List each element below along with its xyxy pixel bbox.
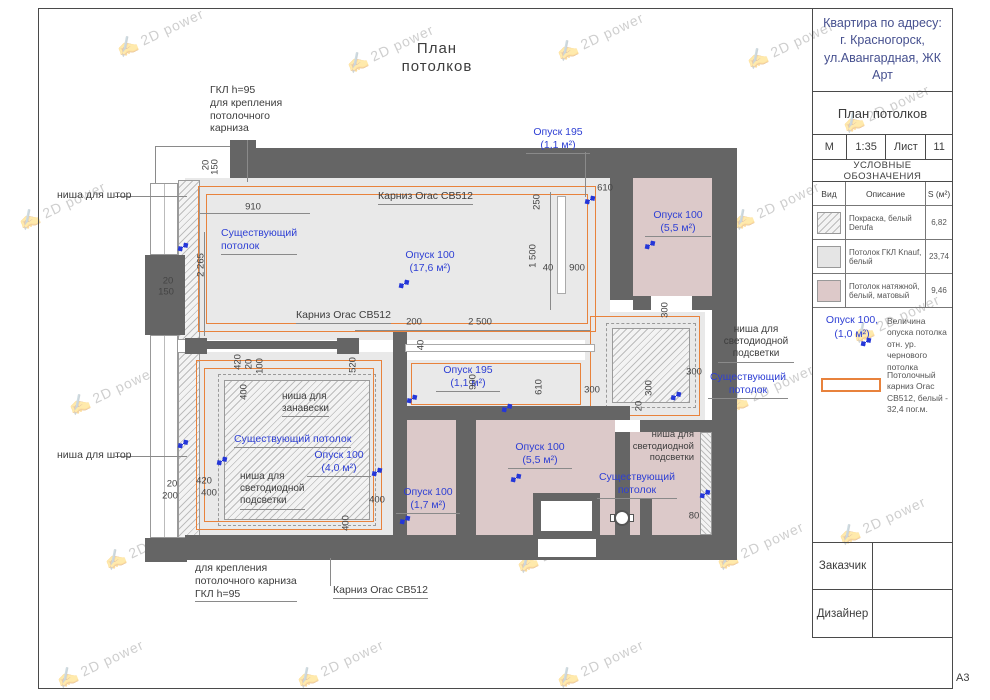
label-opusk100-bedroom: Опуск 100 (4,0 м²) xyxy=(307,449,371,477)
label-karniz-3: Карниз Orac CB512 xyxy=(333,584,428,599)
dim-300-left: 300 xyxy=(584,385,600,395)
level-marker-icon xyxy=(511,473,522,484)
legend-col-type: Вид xyxy=(813,182,846,206)
level-marker-icon xyxy=(217,456,228,467)
note-led-bedroom: ниша для светодиодной подсветки xyxy=(240,471,305,510)
level-marker-icon xyxy=(671,391,682,402)
level-marker-icon xyxy=(407,394,418,405)
dim-80: 80 xyxy=(689,511,700,521)
designer-value xyxy=(873,590,952,637)
sheet-number: 11 xyxy=(926,135,952,159)
label-opusk100-bath: Опуск 100 (5,5 м²) xyxy=(508,441,572,469)
glass-partition-bar xyxy=(207,341,337,349)
titleblock-scale-row: М 1:35 Лист 11 xyxy=(812,135,952,160)
dim-910: 910 xyxy=(245,202,261,212)
legend-area: 6,82 xyxy=(926,206,952,240)
legend-swatch-gray xyxy=(817,246,841,268)
level-marker-icon xyxy=(372,467,383,478)
legend-desc: Покраска, белый Derufa xyxy=(846,206,926,240)
opening-under-tub xyxy=(538,537,596,557)
door-opening-kitchen xyxy=(651,296,692,310)
note-nisha-shtor-2: ниша для штор xyxy=(57,449,132,462)
note-gkl-top: ГКЛ h=95 для крепления потолочного карни… xyxy=(210,84,282,135)
legend-symbols: Опуск 100, (1,0 м²) Величина опуска пото… xyxy=(812,308,952,543)
dim-900-v: 900 xyxy=(468,374,478,390)
wall-partition-a xyxy=(185,338,207,354)
scale-value: 1:35 xyxy=(847,135,887,159)
wall-left-bottom xyxy=(145,538,187,562)
level-marker-icon xyxy=(700,489,711,500)
label-karniz-2: Карниз Orac CB512 xyxy=(296,309,391,324)
symbol-opusk-label: Опуск 100, (1,0 м²) xyxy=(819,314,885,341)
washing-machine-stub-right xyxy=(629,514,634,522)
washing-machine-stub-left xyxy=(610,514,615,522)
sheet-label: Лист xyxy=(886,135,926,159)
note-led-hallway: ниша для светодиодной подсветки xyxy=(718,324,794,363)
label-opusk100-living: Опуск 100 (17,6 м²) xyxy=(398,249,462,275)
wall-top-left-step xyxy=(230,140,256,178)
label-sush-living: Существующий потолок xyxy=(221,227,297,255)
label-sush-right: Существующий потолок xyxy=(597,471,677,499)
transition-niche xyxy=(405,344,595,352)
dim-1500-v: 1 500 xyxy=(528,244,538,268)
cornice-swatch xyxy=(821,378,881,392)
legend-rows: Покраска, белый Derufa6,82Потолок ГКЛ Kn… xyxy=(813,206,952,308)
label-karniz-1: Карниз Orac CB512 xyxy=(378,190,473,205)
level-marker-icon xyxy=(400,515,411,526)
note-nisha-shtor-1: ниша для штор xyxy=(57,189,132,202)
wall-kitchen-bottom-right xyxy=(692,296,712,310)
legend-title: УСЛОВНЫЕ ОБОЗНАЧЕНИЯ xyxy=(812,160,952,182)
label-opusk195-top: Опуск 195 (1,1 м²) xyxy=(526,126,590,154)
dim-line-1500 xyxy=(550,192,551,310)
dim-20-b: 20 xyxy=(167,479,178,489)
level-marker-icon xyxy=(645,240,656,251)
legend-swatch-cell xyxy=(813,274,846,308)
titleblock-doc-title: План потолков xyxy=(812,92,952,135)
note-gkl-bottom: для крепления потолочного карниза ГКЛ h=… xyxy=(195,562,297,602)
drawing-sheet: ✍2D power✍2D power✍2D power✍2D power✍2D … xyxy=(0,0,990,700)
leader-karniz-3 xyxy=(330,558,331,586)
titleblock-customer: Заказчик xyxy=(812,543,952,590)
label-opusk100-small: Опуск 100 (1,7 м²) xyxy=(396,486,460,514)
dim-520-v: 520 xyxy=(348,357,358,373)
dim-line-910 xyxy=(200,213,310,214)
legend-swatch-pink xyxy=(817,280,841,302)
dim-line-2265 xyxy=(204,232,205,336)
legend-swatch-cell xyxy=(813,240,846,274)
dim-900-a: 900 xyxy=(569,263,585,273)
customer-value xyxy=(873,543,952,589)
wall-kitchen-left xyxy=(610,178,633,300)
level-marker-icon xyxy=(502,403,513,414)
legend-table: Вид Описание S (м²) Покраска, белый Deru… xyxy=(812,182,952,308)
room-small-ceiling xyxy=(407,420,456,535)
legend-col-area: S (м²) xyxy=(926,182,952,206)
dim-200: 200 xyxy=(406,317,422,327)
customer-label: Заказчик xyxy=(813,543,873,589)
dim-400-v-a: 400 xyxy=(239,384,249,400)
note-led-right-room: ниша для светодиодной подсветки xyxy=(622,429,694,464)
level-marker-icon xyxy=(178,242,189,253)
dim-40-a: 40 xyxy=(543,263,554,273)
column-niche xyxy=(557,196,566,294)
wall-top xyxy=(245,148,737,178)
dim-420-v: 420 xyxy=(233,354,243,370)
dim-610-top: 610 xyxy=(597,183,613,193)
legend-desc: Потолок ГКЛ Knauf, белый xyxy=(846,240,926,274)
titleblock-designer: Дизайнер xyxy=(812,590,952,638)
dim-400-v-b: 400 xyxy=(341,515,351,531)
dim-100-v: 100 xyxy=(255,358,265,374)
level-marker-icon xyxy=(399,279,410,290)
dim-20-v-inner: 20 xyxy=(634,401,644,412)
dim-200-b: 200 xyxy=(162,491,178,501)
level-marker-icon xyxy=(178,439,189,450)
dim-300-right: 300 xyxy=(686,367,702,377)
wall-corridor-bottom xyxy=(407,406,630,420)
dim-line-2500 xyxy=(355,330,590,331)
dim-2265-v: 2 265 xyxy=(196,253,206,277)
dim-20-a: 20 xyxy=(163,276,174,286)
sheet-format: А3 xyxy=(956,672,969,684)
wall-partition-b xyxy=(337,338,359,354)
dim-400-left: 400 xyxy=(201,488,217,498)
washing-machine-icon xyxy=(614,510,630,526)
titleblock-address: Квартира по адресу: г. Красногорск, ул.А… xyxy=(812,8,952,92)
legend-area: 9,46 xyxy=(926,274,952,308)
dim-610-v: 610 xyxy=(534,379,544,395)
label-opusk100-kitchen: Опуск 100 (5,5 м²) xyxy=(645,209,711,237)
label-sush-hallway: Существующий потолок xyxy=(708,371,788,399)
dim-2500: 2 500 xyxy=(468,317,492,327)
cornice-hallway xyxy=(590,316,700,416)
symbol-cornice-desc: Потолочный карниз Orac CB512, белый - 32… xyxy=(887,370,949,416)
legend-row: Потолок натяжной, белый, матовый9,46 xyxy=(813,274,952,308)
wall-kitchen-bottom-left xyxy=(633,296,651,310)
legend-swatch-cell xyxy=(813,206,846,240)
dim-20-v-b: 20 xyxy=(244,359,254,370)
dim-400-right: 400 xyxy=(369,495,385,505)
legend-row: Потолок ГКЛ Knauf, белый23,74 xyxy=(813,240,952,274)
level-marker-icon xyxy=(585,195,596,206)
dim-420-left: 420 xyxy=(196,476,212,486)
legend-col-desc: Описание xyxy=(846,182,926,206)
dim-40-v: 40 xyxy=(416,340,426,351)
scale-label: М xyxy=(813,135,847,159)
leader-gkl-top xyxy=(247,140,248,182)
designer-label: Дизайнер xyxy=(813,590,873,637)
dim-300-v-inner: 300 xyxy=(644,380,654,396)
dim-300-v-top: 300 xyxy=(660,302,670,318)
window-bay-top xyxy=(150,183,178,255)
window-bay-bottom xyxy=(150,335,178,538)
dim-250-v: 250 xyxy=(532,194,542,210)
legend-desc: Потолок натяжной, белый, матовый xyxy=(846,274,926,308)
wall-small-bath-divider xyxy=(456,420,476,535)
legend-swatch-hatch xyxy=(817,212,841,234)
symbol-opusk-desc: Величина опуска потолка отн. ур. черново… xyxy=(887,316,949,373)
note-nisha-zanaveski: ниша для занавески xyxy=(282,391,329,417)
dim-150-a: 150 xyxy=(158,287,174,297)
wall-rightroom-stub xyxy=(640,498,652,538)
leader-opusk195-top xyxy=(585,152,586,197)
plan-title: План потолков xyxy=(382,40,492,77)
legend-area: 23,74 xyxy=(926,240,952,274)
led-niche-strip-right xyxy=(700,432,712,535)
legend-row: Покраска, белый Derufa6,82 xyxy=(813,206,952,240)
label-sush-bedroom: Существующий потолок xyxy=(234,433,351,448)
room-kitchen-ceiling xyxy=(633,178,712,296)
bathtub-inner xyxy=(541,501,592,531)
dim-150-v: 150 xyxy=(210,159,220,175)
wall-bottom xyxy=(185,535,712,560)
